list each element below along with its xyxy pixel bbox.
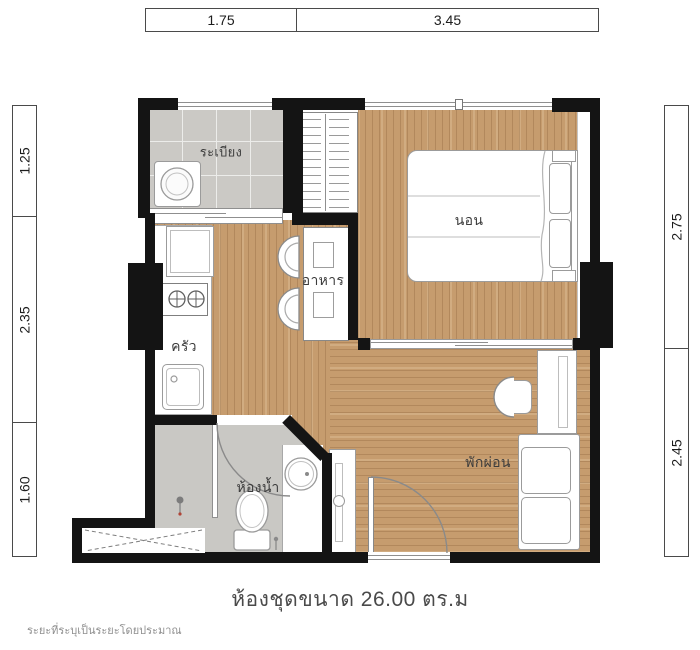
floor-plan-page: 1.75 3.45 1.25 2.35 1.60 2.75 2.45	[0, 0, 700, 650]
wardrobe-hangers-left	[301, 118, 321, 208]
sofa-cushion-2	[521, 497, 571, 544]
wall-below-wardrobe	[292, 213, 358, 225]
pillow-1	[549, 163, 571, 214]
label-balcony: ระเบียง	[200, 142, 242, 163]
shower-glass-partition	[212, 423, 218, 518]
wall-partition-cap-right	[573, 338, 590, 350]
wardrobe-hangers-right	[329, 118, 349, 208]
label-bedroom: นอน	[455, 210, 483, 232]
wall-dining-bedroom	[348, 225, 358, 340]
dim-left-2: 2.35	[13, 216, 36, 422]
label-bathroom: ห้องน้ำ	[236, 477, 279, 499]
desk-console	[537, 350, 577, 434]
left-dimension-bar: 1.25 2.35 1.60	[12, 105, 37, 557]
bedroom-sliding-partition	[370, 339, 573, 349]
top-dimension-bar: 1.75 3.45	[145, 8, 599, 32]
desk-panel	[558, 356, 568, 428]
dim-top-1: 1.75	[146, 9, 296, 31]
entry-cabinet-knob	[333, 495, 345, 507]
label-kitchen: ครัว	[171, 336, 197, 358]
place-setting-1	[313, 242, 334, 268]
kitchen-sink-basin	[166, 368, 200, 406]
bath-vanity-counter	[282, 445, 323, 553]
refrigerator-inner-line	[170, 230, 210, 273]
plan-caption: ห้องชุดขนาด 26.00 ตร.ม	[0, 583, 700, 616]
headboard-shelf-top	[552, 150, 576, 162]
washing-machine	[154, 161, 201, 207]
dim-right-1: 2.75	[665, 106, 688, 348]
pillow-2	[549, 219, 571, 268]
wall-bath-top	[145, 415, 217, 425]
column-right	[580, 262, 613, 348]
ac-ledge	[82, 528, 205, 553]
place-setting-2	[313, 292, 334, 318]
balcony-sliding-door	[148, 208, 283, 224]
balcony-window	[178, 99, 272, 110]
wall-left-mid	[145, 213, 155, 518]
wall-bottom-b	[450, 552, 600, 563]
dim-left-1: 1.25	[13, 106, 36, 216]
entrance-threshold	[368, 552, 450, 563]
stove	[162, 283, 208, 316]
wall-ledge-top	[72, 518, 155, 528]
plan-footnote: ระยะที่ระบุเป็นระยะโดยประมาณ	[27, 621, 182, 639]
label-dining: อาหาร	[302, 270, 344, 292]
column-left	[128, 263, 163, 350]
wall-ledge-bottom	[72, 553, 215, 563]
wall-bottom-a	[205, 552, 368, 563]
dim-left-3: 1.60	[13, 422, 36, 556]
right-dimension-bar: 2.75 2.45	[664, 105, 689, 557]
bed-headboard-line	[571, 151, 572, 281]
wall-right-lower	[590, 348, 600, 552]
bathroom-threshold	[217, 415, 292, 425]
wall-balcony-wardrobe	[283, 110, 303, 213]
bedroom-windows	[365, 99, 552, 110]
wall-partition-cap-left	[358, 338, 370, 350]
dim-right-2: 2.45	[665, 348, 688, 556]
headboard-shelf-bottom	[552, 270, 576, 282]
dim-top-2: 3.45	[296, 9, 598, 31]
wall-top-b	[272, 98, 365, 110]
label-living: พักผ่อน	[465, 452, 510, 474]
wall-right-upper	[590, 110, 600, 262]
wardrobe-divider-line	[325, 114, 326, 211]
window-mullion	[455, 99, 463, 110]
sofa-cushion-1	[521, 447, 571, 494]
wall-bath-right	[322, 453, 332, 553]
wall-left-upper	[138, 98, 150, 218]
entrance-door-leaf	[368, 477, 374, 553]
armchair-seat	[505, 380, 532, 414]
